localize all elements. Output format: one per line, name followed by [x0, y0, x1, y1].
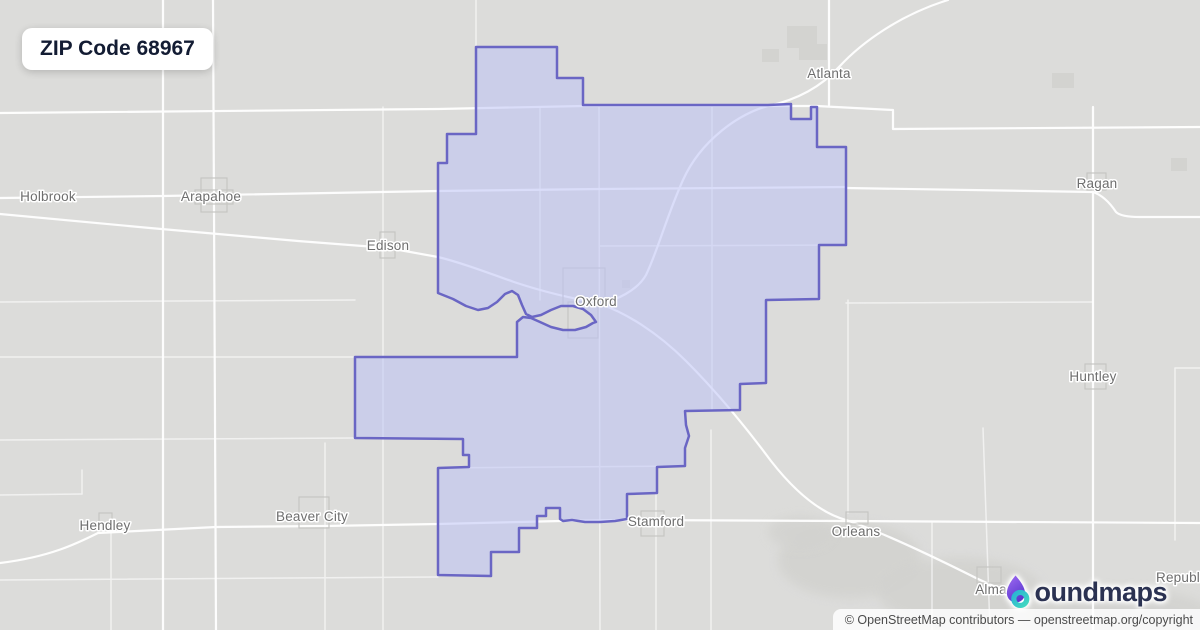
- town-label-stamford: Stamford: [628, 514, 684, 529]
- zip-boundary-polygon[interactable]: [355, 47, 846, 576]
- boundmaps-wordmark: oundmaps: [1034, 579, 1167, 606]
- base-map[interactable]: Holbrook Arapahoe Edison Oxford Atlanta …: [0, 0, 1200, 630]
- boundmaps-logo[interactable]: oundmaps: [1006, 575, 1167, 609]
- town-label-oxford: Oxford: [575, 294, 617, 309]
- town-label-orleans: Orleans: [832, 524, 881, 539]
- attribution-link[interactable]: © OpenStreetMap contributors — openstree…: [845, 613, 1193, 627]
- town-label-alma: Alma: [975, 582, 1007, 597]
- zip-code-badge: ZIP Code 68967: [22, 28, 213, 70]
- town-label-huntley: Huntley: [1069, 369, 1116, 384]
- town-label-edison: Edison: [367, 238, 409, 253]
- town-label-ragan: Ragan: [1077, 176, 1118, 191]
- town-label-beaver-city: Beaver City: [276, 509, 348, 524]
- attribution-bar: © OpenStreetMap contributors — openstree…: [833, 609, 1200, 630]
- town-label-atlanta: Atlanta: [807, 66, 851, 81]
- town-label-holbrook: Holbrook: [20, 189, 76, 204]
- town-label-hendley: Hendley: [80, 518, 131, 533]
- boundmaps-b-icon: [1006, 575, 1032, 609]
- town-label-arapahoe: Arapahoe: [181, 189, 241, 204]
- map-canvas[interactable]: Holbrook Arapahoe Edison Oxford Atlanta …: [0, 0, 1200, 630]
- zip-code-badge-title: ZIP Code 68967: [40, 37, 195, 60]
